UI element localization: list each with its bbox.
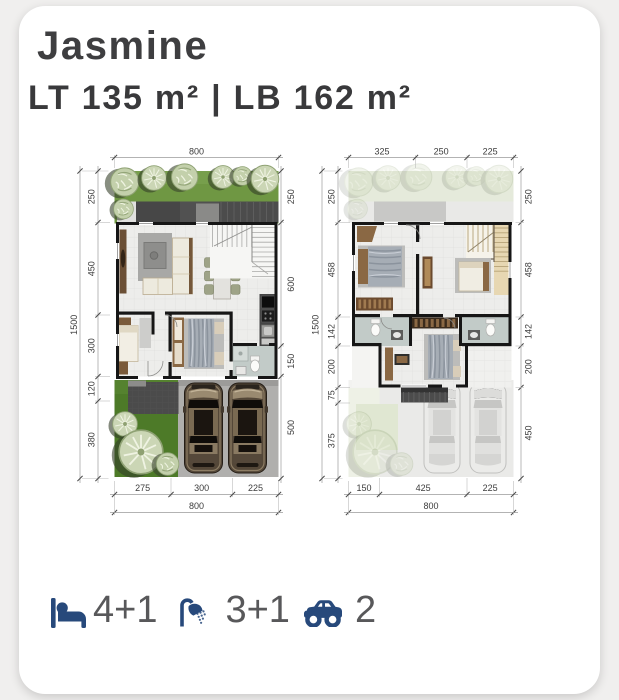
svg-text:142: 142	[327, 324, 337, 339]
svg-text:800: 800	[189, 147, 204, 157]
svg-text:450: 450	[524, 425, 534, 440]
svg-text:250: 250	[286, 189, 296, 204]
svg-text:1500: 1500	[311, 315, 321, 335]
svg-text:225: 225	[483, 483, 498, 493]
svg-text:250: 250	[524, 189, 534, 204]
svg-text:458: 458	[327, 262, 337, 277]
svg-text:250: 250	[327, 189, 337, 204]
svg-text:150: 150	[356, 483, 371, 493]
svg-text:500: 500	[286, 420, 296, 435]
svg-text:120: 120	[87, 381, 97, 396]
svg-text:380: 380	[87, 432, 97, 447]
svg-text:600: 600	[286, 277, 296, 292]
svg-text:75: 75	[327, 390, 337, 400]
svg-text:225: 225	[248, 483, 263, 493]
svg-text:458: 458	[524, 262, 534, 277]
svg-text:142: 142	[524, 324, 534, 339]
svg-text:375: 375	[327, 433, 337, 448]
svg-text:425: 425	[416, 483, 431, 493]
svg-text:200: 200	[524, 359, 534, 374]
svg-text:150: 150	[286, 354, 296, 369]
svg-text:800: 800	[189, 501, 204, 511]
svg-text:300: 300	[87, 338, 97, 353]
svg-text:250: 250	[434, 147, 449, 157]
svg-text:250: 250	[87, 189, 97, 204]
svg-text:300: 300	[194, 483, 209, 493]
svg-text:1500: 1500	[69, 315, 79, 335]
svg-text:325: 325	[374, 147, 389, 157]
svg-text:800: 800	[423, 501, 438, 511]
svg-text:275: 275	[135, 483, 150, 493]
svg-text:225: 225	[483, 147, 498, 157]
svg-text:450: 450	[87, 261, 97, 276]
svg-text:200: 200	[327, 359, 337, 374]
